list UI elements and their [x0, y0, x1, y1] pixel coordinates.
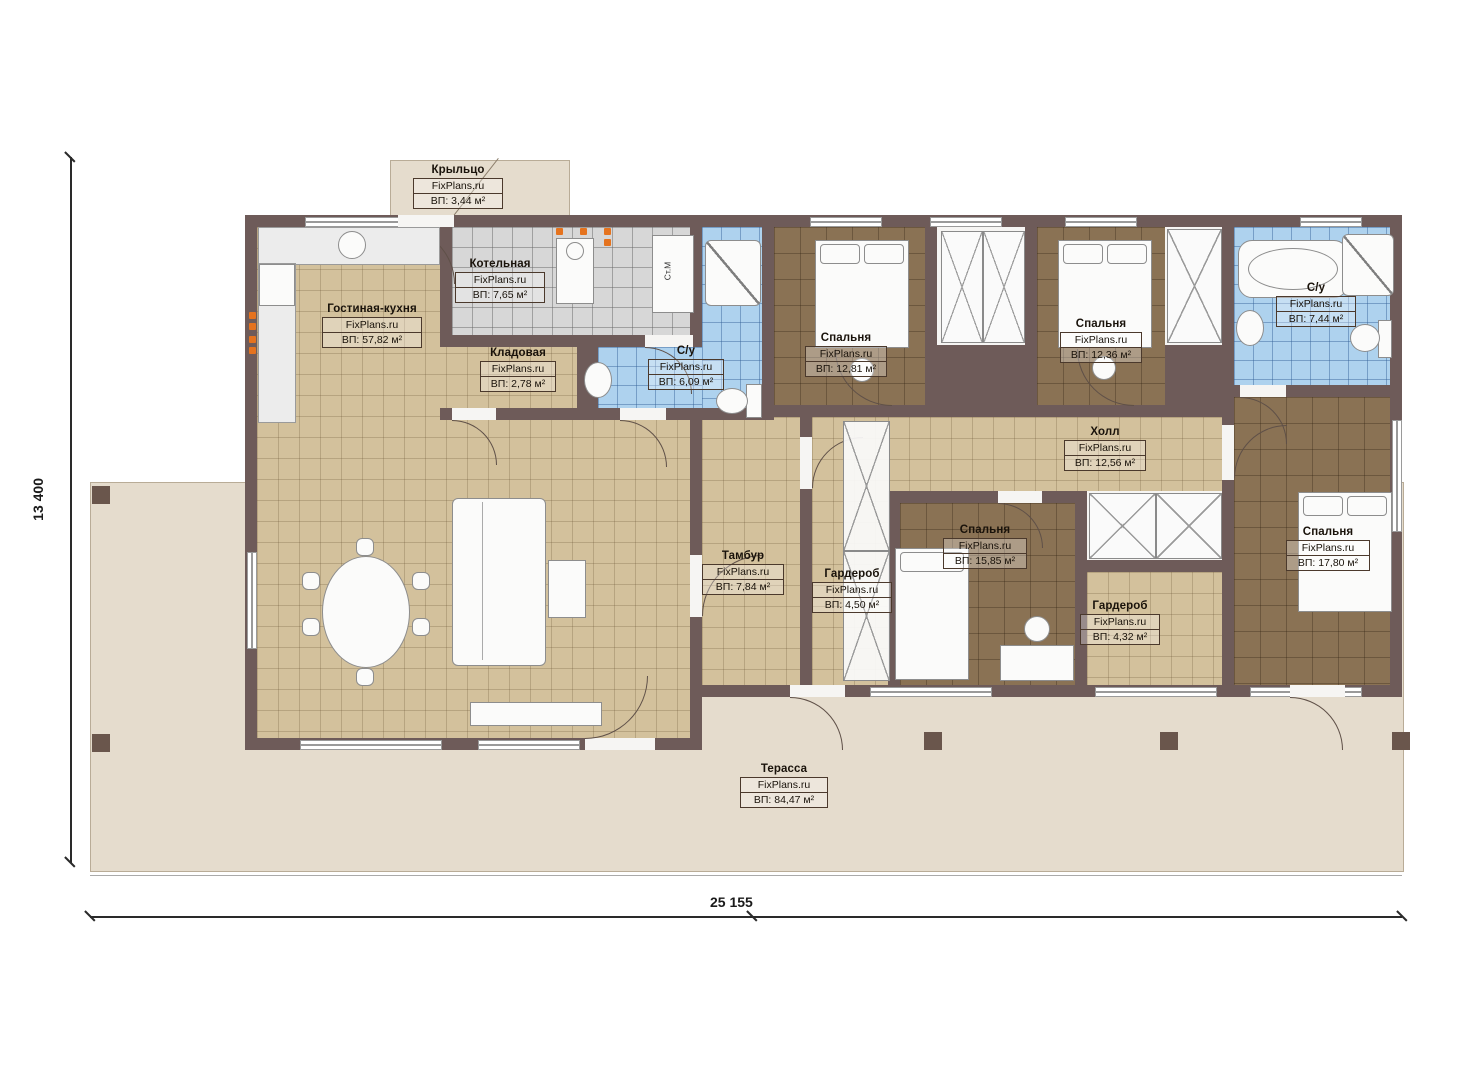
room-label-terrace: Терасса FixPlans.ru ВП: 84,47 м²: [740, 763, 828, 808]
dimension-line-bottom: [90, 916, 1402, 918]
wardrobe-unit-icon: [1156, 493, 1222, 559]
door-opening: [690, 555, 702, 617]
room-info-box: FixPlans.ru ВП: 12,36 м²: [1060, 332, 1142, 363]
wall: [1165, 345, 1222, 357]
terrace-post: [1160, 732, 1178, 750]
room-area: ВП: 7,84 м²: [703, 580, 783, 594]
room-area: ВП: 57,82 м²: [323, 333, 421, 347]
room-info-box: FixPlans.ru ВП: 84,47 м²: [740, 777, 828, 808]
window: [300, 740, 442, 750]
room-area: ВП: 3,44 м²: [414, 194, 502, 208]
brand-watermark: FixPlans.ru: [1287, 541, 1369, 556]
pillow-icon: [1303, 496, 1343, 516]
pillow-icon: [1063, 244, 1103, 264]
room-info-box: FixPlans.ru ВП: 2,78 м²: [480, 361, 556, 392]
room-info-box: FixPlans.ru ВП: 4,50 м²: [812, 582, 892, 613]
door-opening: [398, 215, 454, 227]
brand-watermark: FixPlans.ru: [1065, 441, 1145, 456]
room-name: Кладовая: [480, 347, 556, 359]
chair-icon: [302, 618, 320, 636]
wall: [937, 345, 1037, 357]
toilet-tank-icon: [1378, 320, 1392, 358]
room-label-bedroom-1: Спальня FixPlans.ru ВП: 12,81 м²: [805, 332, 887, 377]
room-label-wardrobe-1: Гардероб FixPlans.ru ВП: 4,50 м²: [812, 568, 892, 613]
room-label-bedroom-3: Спальня FixPlans.ru ВП: 15,85 м²: [943, 524, 1027, 569]
brand-watermark: FixPlans.ru: [414, 179, 502, 194]
door-opening: [1290, 685, 1345, 697]
room-info-box: FixPlans.ru ВП: 6,09 м²: [648, 359, 724, 390]
pillow-icon: [1107, 244, 1147, 264]
sink-icon: [1236, 310, 1264, 346]
coffee-table-icon: [548, 560, 586, 618]
chair-icon: [412, 572, 430, 590]
tv-bench-icon: [470, 702, 602, 726]
room-info-box: FixPlans.ru ВП: 7,44 м²: [1276, 296, 1356, 327]
sofa-cushion-line: [482, 502, 483, 660]
brand-watermark: FixPlans.ru: [1081, 615, 1159, 630]
room-name: Гардероб: [1080, 600, 1160, 612]
brand-watermark: FixPlans.ru: [703, 565, 783, 580]
room-area: ВП: 4,50 м²: [813, 598, 891, 612]
room-area: ВП: 12,81 м²: [806, 362, 886, 376]
room-area: ВП: 84,47 м²: [741, 793, 827, 807]
room-area: ВП: 15,85 м²: [944, 554, 1026, 568]
light-fixture-icon: [249, 336, 256, 354]
door-opening: [1240, 385, 1286, 397]
dimension-line-left: [70, 157, 72, 863]
room-info-box: FixPlans.ru ВП: 7,65 м²: [455, 272, 545, 303]
toilet-tank-icon: [746, 384, 762, 418]
brand-watermark: FixPlans.ru: [456, 273, 544, 288]
room-label-bedroom-4: Спальня FixPlans.ru ВП: 17,80 м²: [1286, 526, 1370, 571]
dimension-label-left: 13 400: [30, 478, 46, 521]
room-name: Гостиная-кухня: [322, 303, 422, 315]
boiler-dial-icon: [566, 242, 584, 260]
room-name: Спальня: [1060, 318, 1142, 330]
wall: [925, 227, 937, 357]
door-opening: [585, 738, 655, 750]
desk-icon: [1000, 645, 1074, 681]
window: [247, 552, 257, 649]
room-name: Котельная: [455, 258, 545, 270]
window: [930, 217, 1002, 227]
brand-watermark: FixPlans.ru: [1061, 333, 1141, 348]
wall: [1025, 227, 1037, 357]
pillow-icon: [1347, 496, 1387, 516]
door-opening: [790, 685, 845, 697]
room-label-boiler: Котельная FixPlans.ru ВП: 7,65 м²: [455, 258, 545, 303]
fridge-icon: [259, 264, 295, 306]
brand-watermark: FixPlans.ru: [323, 318, 421, 333]
room-label-bath-2: С/у FixPlans.ru ВП: 7,44 м²: [1276, 282, 1356, 327]
room-label-pantry: Кладовая FixPlans.ru ВП: 2,78 м²: [480, 347, 556, 392]
wardrobe-unit-icon: [983, 231, 1025, 343]
wall: [762, 405, 830, 417]
room-name: Спальня: [943, 524, 1027, 536]
room-name: Холл: [1064, 426, 1146, 438]
room-area: ВП: 17,80 м²: [1287, 556, 1369, 570]
brand-watermark: FixPlans.ru: [813, 583, 891, 598]
window: [810, 217, 882, 227]
room-name: Терасса: [740, 763, 828, 775]
toilet-bowl-icon: [1350, 324, 1380, 352]
room-info-box: FixPlans.ru ВП: 3,44 м²: [413, 178, 503, 209]
window: [478, 740, 580, 750]
room-label-hall: Холл FixPlans.ru ВП: 12,56 м²: [1064, 426, 1146, 471]
sofa-icon: [452, 498, 546, 666]
room-area: ВП: 7,65 м²: [456, 288, 544, 302]
chair-icon: [356, 668, 374, 686]
terrace-post: [92, 734, 110, 752]
room-info-box: FixPlans.ru ВП: 17,80 м²: [1286, 540, 1370, 571]
room-name: Тамбур: [702, 550, 784, 562]
brand-watermark: FixPlans.ru: [741, 778, 827, 793]
toilet-bowl-icon: [716, 388, 748, 414]
window: [870, 687, 992, 697]
door-opening: [1222, 425, 1234, 480]
wall: [888, 491, 1075, 503]
room-label-living-kitchen: Гостиная-кухня FixPlans.ru ВП: 57,82 м²: [322, 303, 422, 348]
washing-machine-label: Ст.М: [662, 262, 672, 281]
terrace-edge-line: [90, 875, 1402, 876]
room-label-porch: Крыльцо FixPlans.ru ВП: 3,44 м²: [413, 164, 503, 209]
chair-icon: [412, 618, 430, 636]
room-info-box: FixPlans.ru ВП: 15,85 м²: [943, 538, 1027, 569]
room-area: ВП: 12,56 м²: [1065, 456, 1145, 470]
room-label-bedroom-2: Спальня FixPlans.ru ВП: 12,36 м²: [1060, 318, 1142, 363]
room-info-box: FixPlans.ru ВП: 12,81 м²: [805, 346, 887, 377]
wall: [1075, 491, 1087, 685]
pillow-icon: [864, 244, 904, 264]
floor-plan-canvas: 13 400 25 155: [0, 0, 1474, 1080]
wall: [440, 227, 452, 347]
room-name: Гардероб: [812, 568, 892, 580]
wardrobe-unit-icon: [1167, 229, 1222, 343]
room-label-vestibule: Тамбур FixPlans.ru ВП: 7,84 м²: [702, 550, 784, 595]
brand-watermark: FixPlans.ru: [481, 362, 555, 377]
room-info-box: FixPlans.ru ВП: 57,82 м²: [322, 317, 422, 348]
dimension-label-bottom: 25 155: [710, 894, 753, 910]
window: [1065, 217, 1137, 227]
kitchen-sink-icon: [338, 231, 366, 259]
brand-watermark: FixPlans.ru: [806, 347, 886, 362]
washing-machine-icon: [652, 235, 694, 313]
room-area: ВП: 2,78 м²: [481, 377, 555, 391]
light-fixture-icon: [249, 312, 256, 330]
door-opening: [998, 491, 1042, 503]
room-info-box: FixPlans.ru ВП: 4,32 м²: [1080, 614, 1160, 645]
chair-icon: [356, 538, 374, 556]
room-area: ВП: 6,09 м²: [649, 375, 723, 389]
wardrobe-unit-icon: [1089, 493, 1156, 559]
room-label-bath-1: С/у FixPlans.ru ВП: 6,09 м²: [648, 345, 724, 390]
room-name: С/у: [648, 345, 724, 357]
brand-watermark: FixPlans.ru: [1277, 297, 1355, 312]
door-opening: [800, 437, 812, 489]
terrace-post: [1392, 732, 1410, 750]
window: [1300, 217, 1362, 227]
wall: [1135, 405, 1222, 417]
wardrobe-unit-icon: [941, 231, 983, 343]
room-name: Спальня: [1286, 526, 1370, 538]
room-label-wardrobe-2: Гардероб FixPlans.ru ВП: 4,32 м²: [1080, 600, 1160, 645]
desk-chair-icon: [1024, 616, 1050, 642]
dining-table-icon: [322, 556, 410, 668]
room-info-box: FixPlans.ru ВП: 7,84 м²: [702, 564, 784, 595]
room-area: ВП: 12,36 м²: [1061, 348, 1141, 362]
window: [1392, 420, 1402, 532]
room-info-box: FixPlans.ru ВП: 12,56 м²: [1064, 440, 1146, 471]
window: [1095, 687, 1217, 697]
door-opening: [620, 408, 666, 420]
shower-icon: [705, 240, 761, 306]
terrace-post: [924, 732, 942, 750]
light-fixture-icon: [604, 228, 611, 246]
wall: [762, 227, 774, 417]
room-area: ВП: 7,44 м²: [1277, 312, 1355, 326]
room-name: Крыльцо: [413, 164, 503, 176]
room-name: Спальня: [805, 332, 887, 344]
wall: [893, 405, 1072, 417]
brand-watermark: FixPlans.ru: [649, 360, 723, 375]
door-opening: [452, 408, 496, 420]
terrace-post: [92, 486, 110, 504]
room-area: ВП: 4,32 м²: [1081, 630, 1159, 644]
brand-watermark: FixPlans.ru: [944, 539, 1026, 554]
room-name: С/у: [1276, 282, 1356, 294]
chair-icon: [302, 572, 320, 590]
sink-icon: [584, 362, 612, 398]
pillow-icon: [820, 244, 860, 264]
wall: [1087, 560, 1222, 572]
wardrobe-unit-icon: [843, 421, 890, 551]
